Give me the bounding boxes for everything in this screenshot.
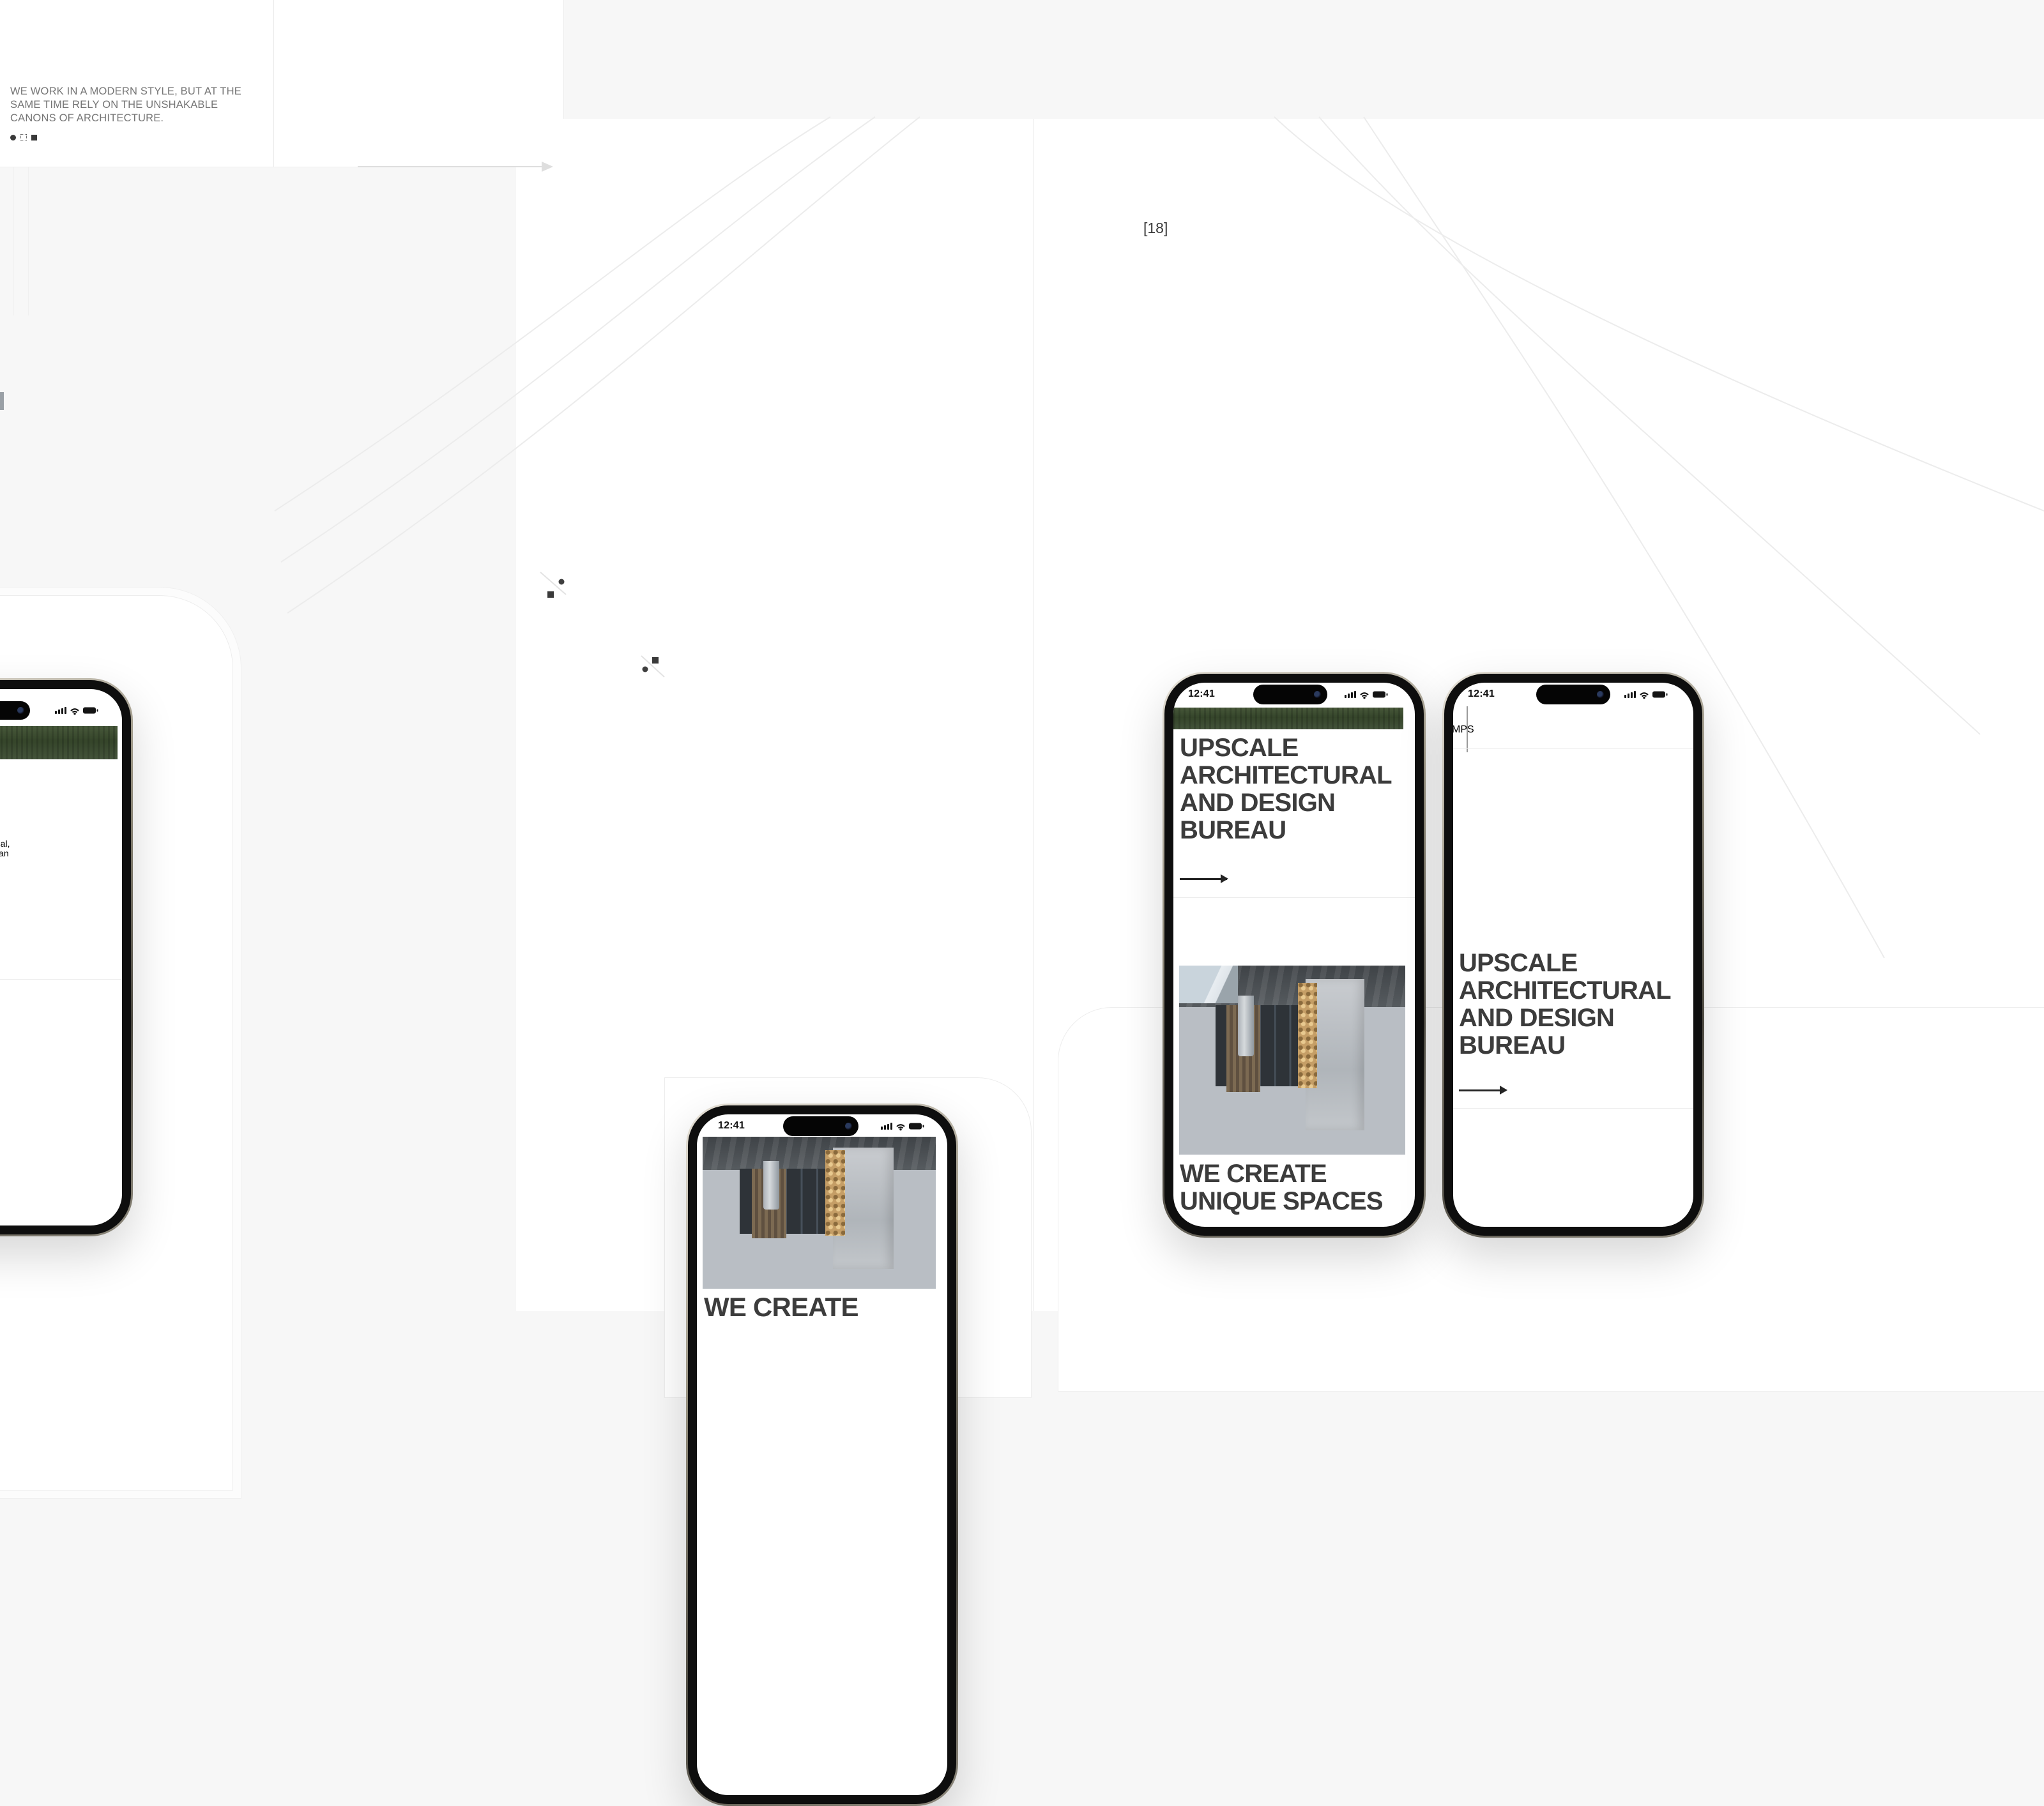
status-icons <box>1624 689 1669 701</box>
dynamic-island <box>1253 685 1327 704</box>
carousel-dot-icon[interactable] <box>10 135 16 140</box>
arrow-icon[interactable] <box>1180 878 1227 880</box>
hero-heading: UPSCALE ARCHITECTURAL AND DESIGN BUREAU <box>1180 734 1392 844</box>
sub-heading-line: UNIQUE SPACES <box>1180 1188 1383 1215</box>
hero-line: ARCHITECTURAL <box>1180 762 1392 789</box>
section-divider <box>0 979 122 980</box>
header-divider <box>1453 748 1693 749</box>
tick-dot-tl <box>559 579 565 585</box>
about-paragraph-1: Beauty and convenience are in our projec… <box>0 769 85 809</box>
fireplace-image <box>703 1137 936 1289</box>
emblem-ticks <box>540 572 664 677</box>
hero-line: BUREAU <box>1180 817 1392 844</box>
statement-text: WE WORK IN A MODERN STYLE, BUT AT THE SA… <box>10 85 256 125</box>
flow-arrow <box>358 162 553 172</box>
camera-icon <box>845 1123 852 1130</box>
logo-crosshair-line <box>1467 706 1468 752</box>
frame-top-left-divider <box>273 0 274 167</box>
brand-logo[interactable]: M PS <box>1453 716 1474 744</box>
camera-icon <box>1314 691 1321 698</box>
section-divider <box>1173 897 1415 898</box>
home-indicator[interactable] <box>0 1218 40 1222</box>
tick-dot-br <box>643 667 648 672</box>
villa-image <box>1454 756 1683 943</box>
fireplace-image <box>1179 966 1405 1155</box>
hero-line: AND DESIGN <box>1459 1005 1671 1032</box>
about-paragraph-2: We are committed to good architecture an… <box>0 819 85 869</box>
phone-left-screen: Beauty and convenience are in our projec… <box>0 689 122 1225</box>
phone-right2-screen: 12:41 M PS <box>1453 683 1693 1227</box>
phone-right1-mockup: 12:41 UPSCALE ARCHITECTURAL AND DESIGN B… <box>1163 672 1426 1238</box>
firewood-stack <box>825 1150 845 1235</box>
phone-right2-mockup: 12:41 M PS <box>1442 672 1704 1238</box>
arrow-icon[interactable] <box>1459 1089 1506 1091</box>
grass-strip-image <box>0 726 118 759</box>
house-image <box>0 1003 118 1221</box>
arc-left-3 <box>287 117 920 613</box>
phone-left-mockup: Beauty and convenience are in our projec… <box>0 678 133 1236</box>
hero-line: BUREAU <box>1459 1032 1671 1059</box>
patio-ceiling <box>703 1137 936 1170</box>
hero-line: AND DESIGN <box>1180 789 1392 817</box>
carousel-frame-icon[interactable] <box>20 134 27 140</box>
patio-chimney <box>763 1161 780 1210</box>
camera-icon <box>17 707 24 714</box>
section-heading: WE CREATE <box>704 1293 858 1321</box>
team-counter: [18] <box>1143 220 1168 237</box>
phone-right1-screen: 12:41 UPSCALE ARCHITECTURAL AND DESIGN B… <box>1173 683 1415 1227</box>
status-time: 12:41 <box>1468 688 1495 700</box>
status-time: 12:41 <box>718 1120 745 1132</box>
grass-strip-image <box>1173 708 1403 729</box>
dynamic-island <box>0 701 30 720</box>
brand-logo-left: M <box>1453 724 1460 736</box>
status-icons <box>1345 689 1389 701</box>
dynamic-island <box>783 1116 858 1136</box>
counter-value: 18 <box>1147 220 1164 236</box>
home-indicator[interactable] <box>1520 1203 1607 1206</box>
dynamic-island <box>1536 685 1610 704</box>
section-divider <box>1453 1108 1693 1109</box>
hero-line: UPSCALE <box>1180 734 1392 762</box>
camera-icon <box>1597 691 1604 698</box>
house-image-notch <box>59 1003 118 1058</box>
status-time: 12:41 <box>1188 688 1215 700</box>
sky-gap <box>1179 966 1238 1003</box>
arc-left-2 <box>281 117 875 562</box>
carousel-square-icon[interactable] <box>31 135 37 140</box>
statement-block: WE WORK IN A MODERN STYLE, BUT AT THE SA… <box>10 85 256 140</box>
patio-chimney <box>1238 996 1254 1056</box>
sub-heading: WE CREATE UNIQUE SPACES <box>1180 1160 1383 1215</box>
sub-heading-line: WE CREATE <box>1180 1160 1383 1188</box>
arc-left-1 <box>275 117 830 511</box>
status-icons <box>881 1121 926 1132</box>
heading-line: WE CREATE <box>704 1293 858 1321</box>
phone-bottom-mockup: 12:41 <box>686 1104 958 1806</box>
arc-right-2 <box>1319 117 1980 734</box>
desktop-frame-column-line <box>1033 119 1034 1311</box>
hero-line: ARCHITECTURAL <box>1459 977 1671 1005</box>
tick-square-tl <box>547 591 554 598</box>
hero-line: UPSCALE <box>1459 950 1671 977</box>
firewood-stack <box>1298 983 1317 1089</box>
arc-right-1 <box>1274 117 2044 511</box>
counter-bracket-close: ] <box>1164 220 1168 236</box>
status-icons <box>55 705 100 717</box>
phone-bottom-screen: 12:41 <box>697 1114 947 1795</box>
hero-heading: UPSCALE ARCHITECTURAL AND DESIGN BUREAU <box>1459 950 1671 1059</box>
tick-square-br <box>652 657 659 664</box>
